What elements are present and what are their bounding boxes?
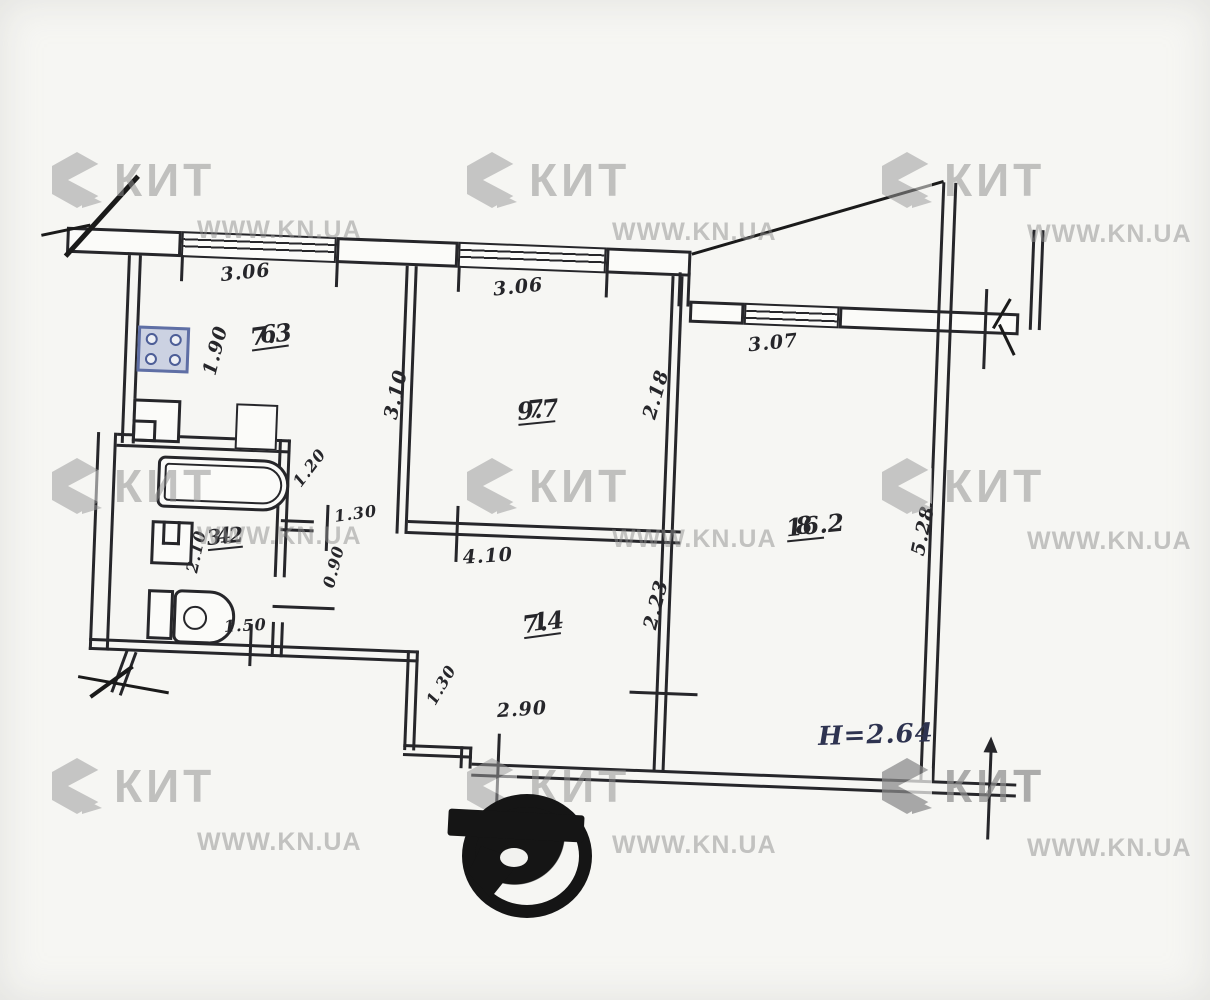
outer-wall-right	[919, 182, 957, 782]
toilet-tank-icon	[146, 589, 174, 640]
window-left	[181, 231, 337, 263]
room-area: 7.3	[248, 318, 293, 350]
dim-hall-bottom: 2.90	[496, 697, 548, 722]
dimension-tick	[605, 271, 608, 297]
window-mid	[458, 242, 607, 274]
wall-room7-room8	[653, 276, 684, 772]
dimension-tick	[180, 255, 183, 281]
dim-bath-width: 1.50	[223, 615, 267, 636]
kitchen-sink-basin	[132, 419, 157, 442]
wall-bath-right-upper	[274, 439, 291, 577]
dim-hall-top: 4.10	[462, 543, 514, 568]
balcony-diagonal-line	[691, 180, 943, 255]
wall-pier	[839, 306, 1020, 335]
washbasin-detail	[162, 521, 181, 546]
wall-hall-step-down	[459, 746, 472, 768]
dim-window-right: 3.07	[747, 329, 799, 356]
wall-break-mark	[89, 665, 134, 699]
wall-hall-top	[407, 520, 680, 544]
toilet-circle	[183, 605, 208, 630]
wall-pier	[689, 301, 745, 325]
dimension-tick	[273, 605, 335, 610]
dim-door-width: 1.30	[333, 501, 378, 526]
room-area: 3.2	[206, 523, 245, 550]
wall-hall-left	[403, 650, 419, 750]
survey-arrow-head	[983, 736, 998, 753]
stove-icon	[136, 326, 190, 374]
kitchen-sink-icon	[132, 398, 182, 443]
room-area: 7.4	[521, 606, 566, 638]
dim-niche: 1.20	[289, 445, 330, 491]
ink-stamp-highlight	[500, 848, 528, 867]
room-area: 9.7	[516, 394, 560, 424]
bathtub-icon	[156, 455, 290, 512]
wall-bath-bottom	[89, 638, 419, 663]
outer-wall-left-bath	[89, 432, 117, 651]
dim-window-left: 3.06	[219, 259, 271, 286]
floor-plan: 6 7.3 7 9.7 8 16.2 1 7.4 4 3.2 3.06 3.06…	[23, 148, 1059, 886]
window-right	[744, 303, 840, 329]
wall-pier	[336, 237, 459, 268]
dim-hall-left: 1.30	[422, 662, 460, 709]
ceiling-height-note: H=2.64	[818, 718, 935, 752]
dimension-tick	[335, 261, 338, 287]
dimension-tick	[457, 266, 460, 292]
room-area: 16.2	[784, 509, 845, 541]
vent-shaft	[235, 403, 279, 451]
dim-kitchen-depth: 1.90	[199, 323, 233, 377]
dim-window-mid: 3.06	[492, 274, 544, 301]
dim-hall-niche: 0.90	[319, 544, 348, 590]
neighbor-wall-stub	[1029, 230, 1045, 330]
